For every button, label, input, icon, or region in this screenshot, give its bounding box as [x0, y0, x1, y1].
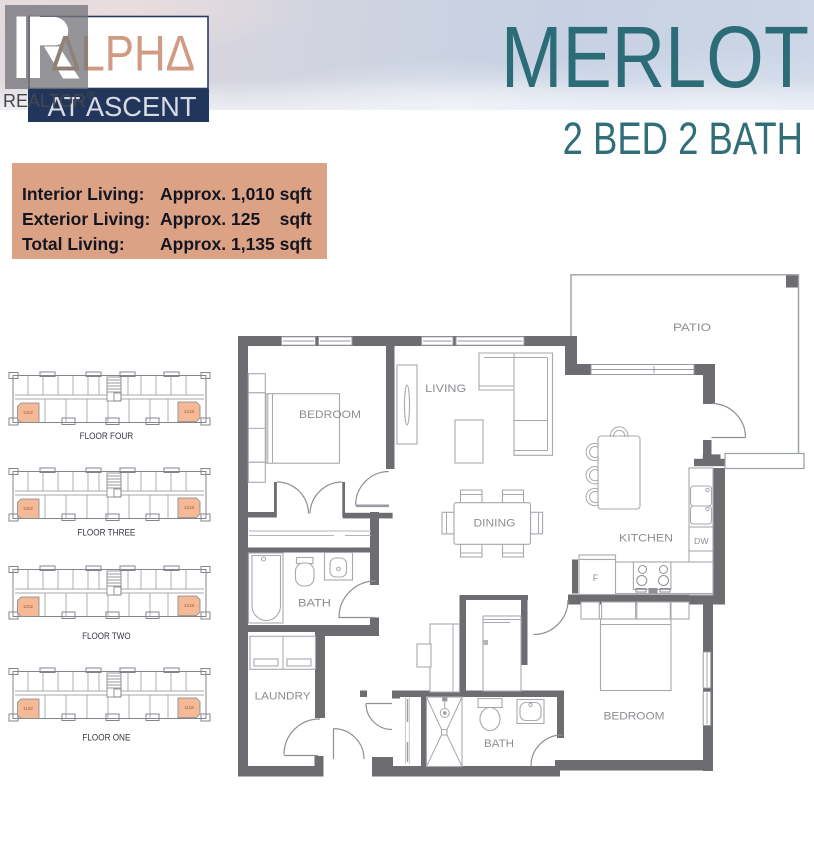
- svg-text:1302: 1302: [23, 506, 34, 511]
- svg-text:FLOOR ONE: FLOOR ONE: [82, 733, 130, 743]
- svg-text:KITCHEN: KITCHEN: [619, 533, 673, 545]
- svg-text:PATIO: PATIO: [673, 322, 712, 334]
- svg-text:1402: 1402: [23, 410, 34, 415]
- svg-text:BEDROOM: BEDROOM: [604, 711, 665, 723]
- svg-text:LIVING: LIVING: [425, 383, 466, 395]
- svg-text:DW: DW: [694, 537, 709, 546]
- svg-text:DINING: DINING: [474, 518, 516, 530]
- svg-text:REALTOR: REALTOR: [3, 90, 86, 111]
- svg-text:1118: 1118: [184, 705, 194, 710]
- svg-text:1418: 1418: [184, 409, 195, 414]
- svg-text:1218: 1218: [184, 603, 195, 608]
- svg-text:FLOOR TWO: FLOOR TWO: [82, 631, 131, 641]
- svg-text:LAUNDRY: LAUNDRY: [255, 691, 312, 703]
- svg-text:1318: 1318: [184, 505, 195, 510]
- svg-text:FLOOR THREE: FLOOR THREE: [77, 528, 135, 538]
- svg-text:®: ®: [87, 90, 95, 102]
- svg-text:BATH: BATH: [484, 738, 514, 750]
- svg-text:F: F: [593, 573, 599, 583]
- svg-text:BATH: BATH: [298, 598, 331, 610]
- svg-text:BEDROOM: BEDROOM: [299, 409, 361, 421]
- svg-text:1102: 1102: [23, 706, 33, 711]
- svg-text:1202: 1202: [23, 604, 34, 609]
- svg-text:FLOOR FOUR: FLOOR FOUR: [80, 431, 134, 441]
